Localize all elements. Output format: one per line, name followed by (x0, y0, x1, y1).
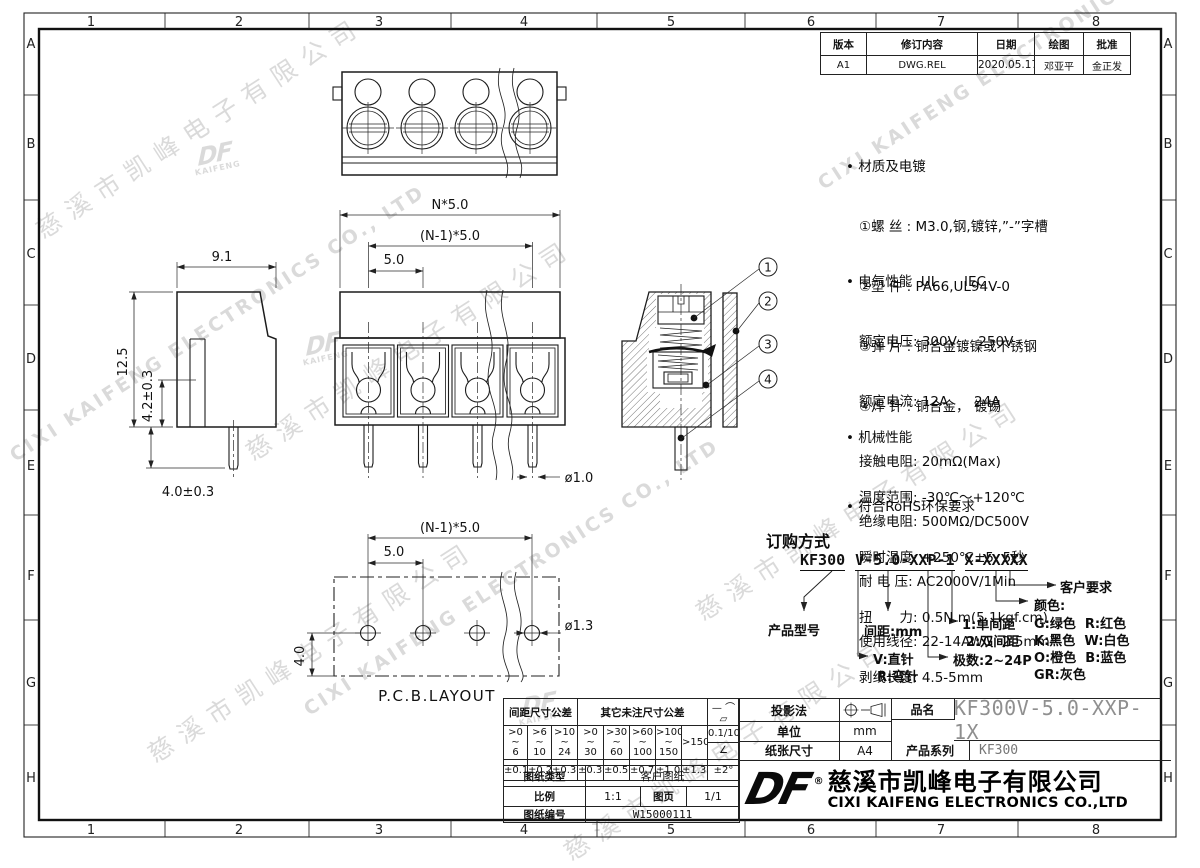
paper-size-value: A4 (839, 741, 892, 761)
revision-col-approved: 批准 (1084, 33, 1131, 56)
company-name-en: CIXI KAIFENG ELECTRONICS CO.,LTD (828, 795, 1128, 811)
side-view: 9.1 12.5 4.2±0.3 4.0±0.3 (116, 250, 276, 500)
model-part-suffix: X-XXXXX (965, 551, 1028, 571)
doc-info-table: 图纸类型 客户图纸 比例 1:1 图页 1/1 图纸编号 W15000111 (503, 765, 740, 823)
svg-text:(N-1)*5.0: (N-1)*5.0 (420, 229, 480, 244)
revision-row: A1 DWG.REL 2020.05.17 邓亚平 金正发 (821, 56, 1131, 75)
svg-text:9.1: 9.1 (212, 250, 233, 265)
svg-text:4.0: 4.0 (293, 646, 308, 667)
model-part-series: KF300 (800, 551, 845, 571)
ordering-label-poles: 极数:2~24P (953, 650, 1032, 669)
rohs-note: • 符合RoHS环保要求 (846, 497, 975, 517)
svg-text:6: 6 (807, 15, 815, 30)
svg-text:7: 7 (937, 15, 945, 30)
ordering-color-row: GR:灰色 (1034, 664, 1086, 683)
engineering-drawing-sheet: { "sheet": { "zone_cols": ["1","2","3","… (0, 0, 1200, 850)
pcb-layout-view: (N-1)*5.0 5.0 ø1.3 4.0 P.C.B.LAYOUT (293, 521, 593, 705)
part-name-label: 品名 (891, 699, 955, 720)
ordering-label-pitch: 间距:mm (864, 621, 922, 640)
ordering-label-customer: 客户要求 (1060, 577, 1112, 596)
company-name-cn: 慈溪市凯峰电子有限公司 (828, 769, 1128, 795)
tol-range: >6 ~ 10 (528, 726, 552, 760)
tol-range: >0 ~ 6 (504, 726, 528, 760)
other-tol-header: 其它未注尺寸公差 (578, 699, 708, 726)
projection-symbol (839, 699, 892, 722)
svg-text:G: G (26, 676, 36, 691)
ordering-title: 订购方式 (766, 528, 830, 552)
first-angle-projection-icon (841, 701, 889, 719)
svg-text:P.C.B.LAYOUT: P.C.B.LAYOUT (378, 687, 496, 705)
form-symbols: — ⌒ ▱ (708, 699, 740, 726)
title-block: 投影法 品名 KF300V-5.0-XXP-1X 单位 mm 纸张尺寸 A4 产… (738, 698, 1161, 821)
svg-text:4: 4 (764, 373, 772, 387)
callout-point-3 (703, 382, 710, 389)
svg-text:2: 2 (235, 823, 243, 838)
svg-text:4: 4 (520, 823, 528, 838)
svg-text:ø1.0: ø1.0 (565, 471, 594, 486)
ordering-model-code: KF300 V-5.0-XXP-1 X-XXXXX (800, 551, 1028, 571)
tol-range: >10 ~ 24 (552, 726, 578, 760)
revision-col-content: 修订内容 (867, 33, 978, 56)
svg-text:6: 6 (807, 823, 815, 838)
svg-text:12.5: 12.5 (116, 348, 131, 377)
doc-type-value: 客户图纸 (586, 766, 740, 787)
svg-text:D: D (1163, 352, 1173, 367)
svg-text:5: 5 (667, 15, 675, 30)
flatness-angle-cell: 0.1/10∠ (708, 726, 740, 760)
series-value: KF300 (969, 741, 1171, 761)
unit-label: 单位 (739, 721, 840, 742)
page-value: 1/1 (687, 787, 740, 807)
electrical-title: • 电气性能 UL IEC (846, 272, 1055, 292)
tol-range: >0 ~ 30 (578, 726, 604, 760)
front-view: N*5.0 (N-1)*5.0 5.0 ø1.0 (335, 198, 593, 486)
doc-no-value: W15000111 (586, 807, 740, 823)
mechanical-title: • 机械性能 (846, 428, 1048, 448)
company-block: DF ® 慈溪市凯峰电子有限公司 CIXI KAIFENG ELECTRONIC… (747, 763, 1157, 817)
svg-text:3: 3 (375, 15, 383, 30)
top-view (333, 68, 566, 178)
model-part-body: V-5.0-XXP-1 (855, 551, 954, 571)
svg-text:H: H (26, 771, 36, 786)
svg-text:F: F (1164, 569, 1171, 584)
revision-col-date: 日期 (978, 33, 1035, 56)
svg-text:4.2±0.3: 4.2±0.3 (141, 370, 156, 422)
svg-text:A: A (1164, 37, 1173, 52)
ordering-label-color-title: 颜色: (1034, 595, 1065, 614)
tol-range: >150 (682, 726, 708, 760)
part-name-value: KF300V-5.0-XXP-1X (954, 699, 1161, 741)
svg-text:8: 8 (1092, 15, 1100, 30)
paper-size-label: 纸张尺寸 (739, 741, 840, 761)
svg-text:4: 4 (520, 15, 528, 30)
svg-text:1: 1 (87, 15, 95, 30)
unit-value: mm (839, 721, 892, 742)
doc-no-label: 图纸编号 (504, 807, 586, 823)
projection-label: 投影法 (739, 699, 840, 722)
svg-text:4.0±0.3: 4.0±0.3 (162, 485, 214, 500)
revision-table: 版本 修订内容 日期 绘图 批准 A1 DWG.REL 2020.05.17 邓… (820, 32, 1131, 75)
revision-col-version: 版本 (821, 33, 867, 56)
series-label: 产品系列 (891, 741, 970, 761)
svg-text:5.0: 5.0 (384, 545, 405, 560)
svg-text:ø1.3: ø1.3 (565, 619, 594, 634)
svg-text:F: F (27, 569, 34, 584)
svg-text:B: B (27, 137, 36, 152)
svg-text:7: 7 (937, 823, 945, 838)
svg-text:H: H (1163, 771, 1173, 786)
svg-text:1: 1 (764, 261, 772, 275)
svg-text:2: 2 (764, 295, 772, 309)
svg-text:8: 8 (1092, 823, 1100, 838)
tol-range: >60 ~ 100 (630, 726, 656, 760)
svg-text:(N-1)*5.0: (N-1)*5.0 (420, 521, 480, 536)
svg-text:A: A (27, 37, 36, 52)
section-view: 1 2 3 4 (622, 258, 777, 480)
material-title: • 材质及电镀 (846, 157, 1048, 177)
ordering-label-spacing-2: 2:双间距 (966, 631, 1019, 650)
svg-text:1: 1 (87, 823, 95, 838)
svg-text:5.0: 5.0 (384, 253, 405, 268)
revision-col-drawn: 绘图 (1035, 33, 1084, 56)
tol-range: >30 ~ 60 (604, 726, 630, 760)
scale-value: 1:1 (586, 787, 641, 807)
svg-text:5: 5 (667, 823, 675, 838)
pitch-tol-header: 间距尺寸公差 (504, 699, 578, 726)
svg-text:3: 3 (764, 338, 772, 352)
scale-label: 比例 (504, 787, 586, 807)
svg-text:3: 3 (375, 823, 383, 838)
doc-type-label: 图纸类型 (504, 766, 586, 787)
svg-text:N*5.0: N*5.0 (432, 198, 469, 213)
svg-text:C: C (1163, 247, 1172, 262)
svg-text:E: E (27, 459, 35, 474)
svg-text:D: D (26, 352, 36, 367)
svg-text:B: B (1164, 137, 1173, 152)
company-names: 慈溪市凯峰电子有限公司 CIXI KAIFENG ELECTRONICS CO.… (828, 769, 1128, 811)
svg-text:G: G (1163, 676, 1173, 691)
ordering-label-product-model: 产品型号 (768, 620, 820, 639)
company-logo: DF (742, 768, 814, 812)
balloon-callouts: 1 2 3 4 (759, 258, 777, 388)
callout-point-2 (733, 328, 740, 335)
ordering-label-pin-r: R:弯针 (877, 666, 918, 685)
spec-line: 额定电压: 300V 250V (859, 332, 1055, 352)
tol-range: >100 ~ 150 (656, 726, 682, 760)
svg-text:C: C (26, 247, 35, 262)
svg-text:2: 2 (235, 15, 243, 30)
page-label: 图页 (641, 787, 687, 807)
registered-mark: ® (814, 776, 824, 787)
svg-text:E: E (1164, 459, 1172, 474)
